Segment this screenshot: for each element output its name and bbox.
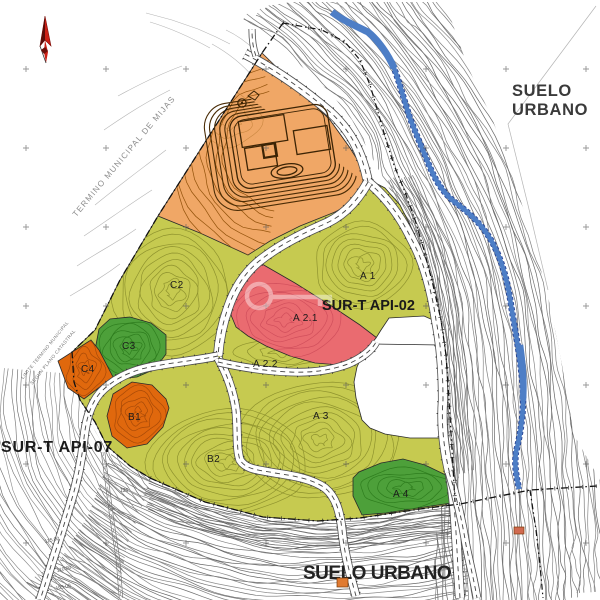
svg-text:C2: C2 <box>170 280 184 291</box>
svg-text:URBANO: URBANO <box>512 101 588 119</box>
svg-text:A 1: A 1 <box>360 271 376 282</box>
svg-text:SUELO: SUELO <box>512 82 572 100</box>
svg-text:136: 136 <box>120 488 129 494</box>
svg-text:A 2.1: A 2.1 <box>293 313 318 324</box>
svg-text:B1: B1 <box>128 412 141 423</box>
svg-text:C3: C3 <box>122 341 136 352</box>
svg-text:A 3: A 3 <box>313 411 329 422</box>
svg-text:SUR-T API-07: SUR-T API-07 <box>1 439 113 456</box>
svg-text:A 4: A 4 <box>393 489 409 500</box>
svg-text:SUR-T API-02: SUR-T API-02 <box>322 298 415 314</box>
svg-text:SUELO URBANO: SUELO URBANO <box>303 563 451 584</box>
svg-text:C4: C4 <box>81 364 95 375</box>
svg-text:A 2.2: A 2.2 <box>253 359 278 370</box>
svg-text:B2: B2 <box>207 454 220 465</box>
